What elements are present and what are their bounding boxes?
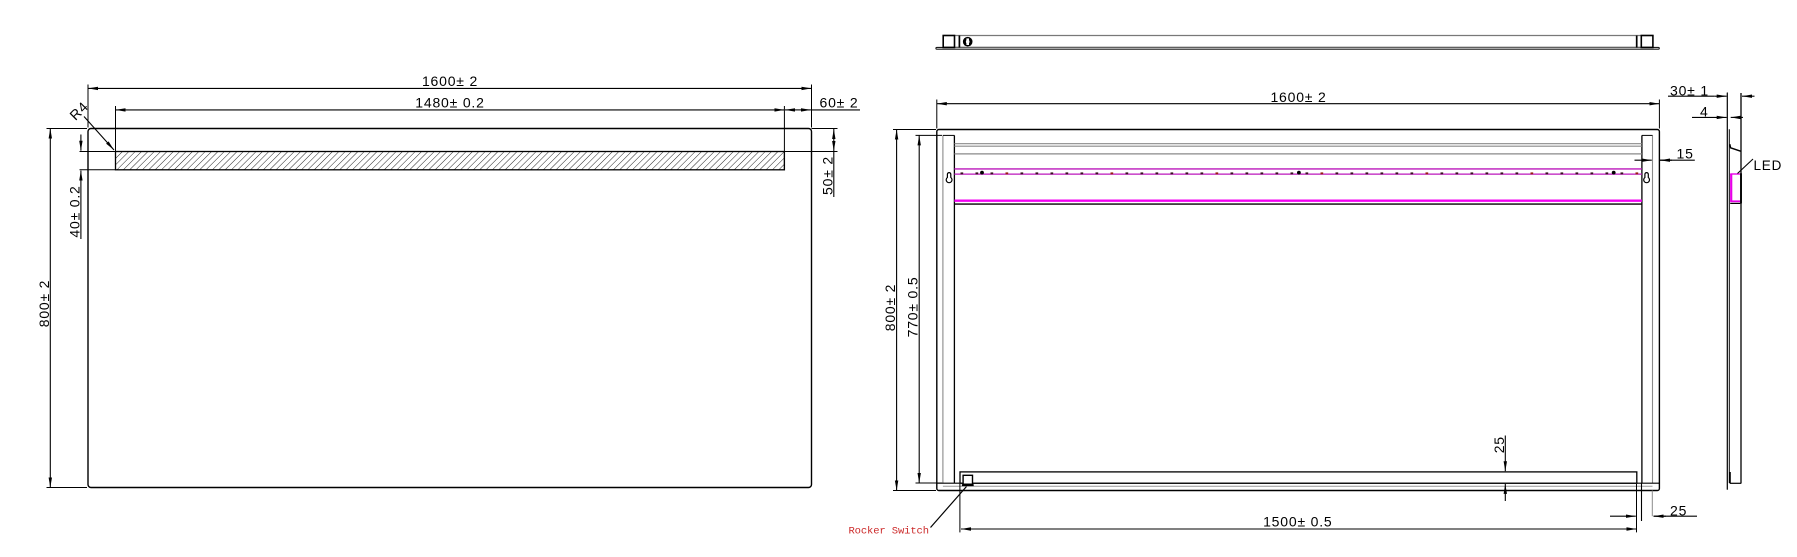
svg-text:25: 25	[1491, 436, 1507, 453]
svg-text:800± 2: 800± 2	[36, 280, 52, 328]
svg-text:50± 2: 50± 2	[819, 156, 835, 195]
svg-text:1600± 2: 1600± 2	[1270, 89, 1326, 105]
svg-text:LED: LED	[1754, 158, 1783, 173]
svg-text:4: 4	[1700, 103, 1709, 119]
svg-text:1480± 0.2: 1480± 0.2	[415, 95, 484, 111]
svg-text:40± 0.2: 40± 0.2	[66, 185, 82, 237]
svg-text:770± 0.5: 770± 0.5	[905, 277, 921, 338]
svg-text:1500± 0.5: 1500± 0.5	[1263, 514, 1332, 530]
svg-text:30± 1: 30± 1	[1670, 82, 1709, 98]
svg-text:25: 25	[1670, 502, 1687, 518]
svg-text:1600± 2: 1600± 2	[422, 73, 478, 89]
svg-text:Rocker Switch: Rocker Switch	[849, 526, 930, 538]
svg-text:800± 2: 800± 2	[882, 284, 898, 332]
svg-text:15: 15	[1677, 145, 1694, 161]
svg-text:60± 2: 60± 2	[820, 95, 859, 111]
